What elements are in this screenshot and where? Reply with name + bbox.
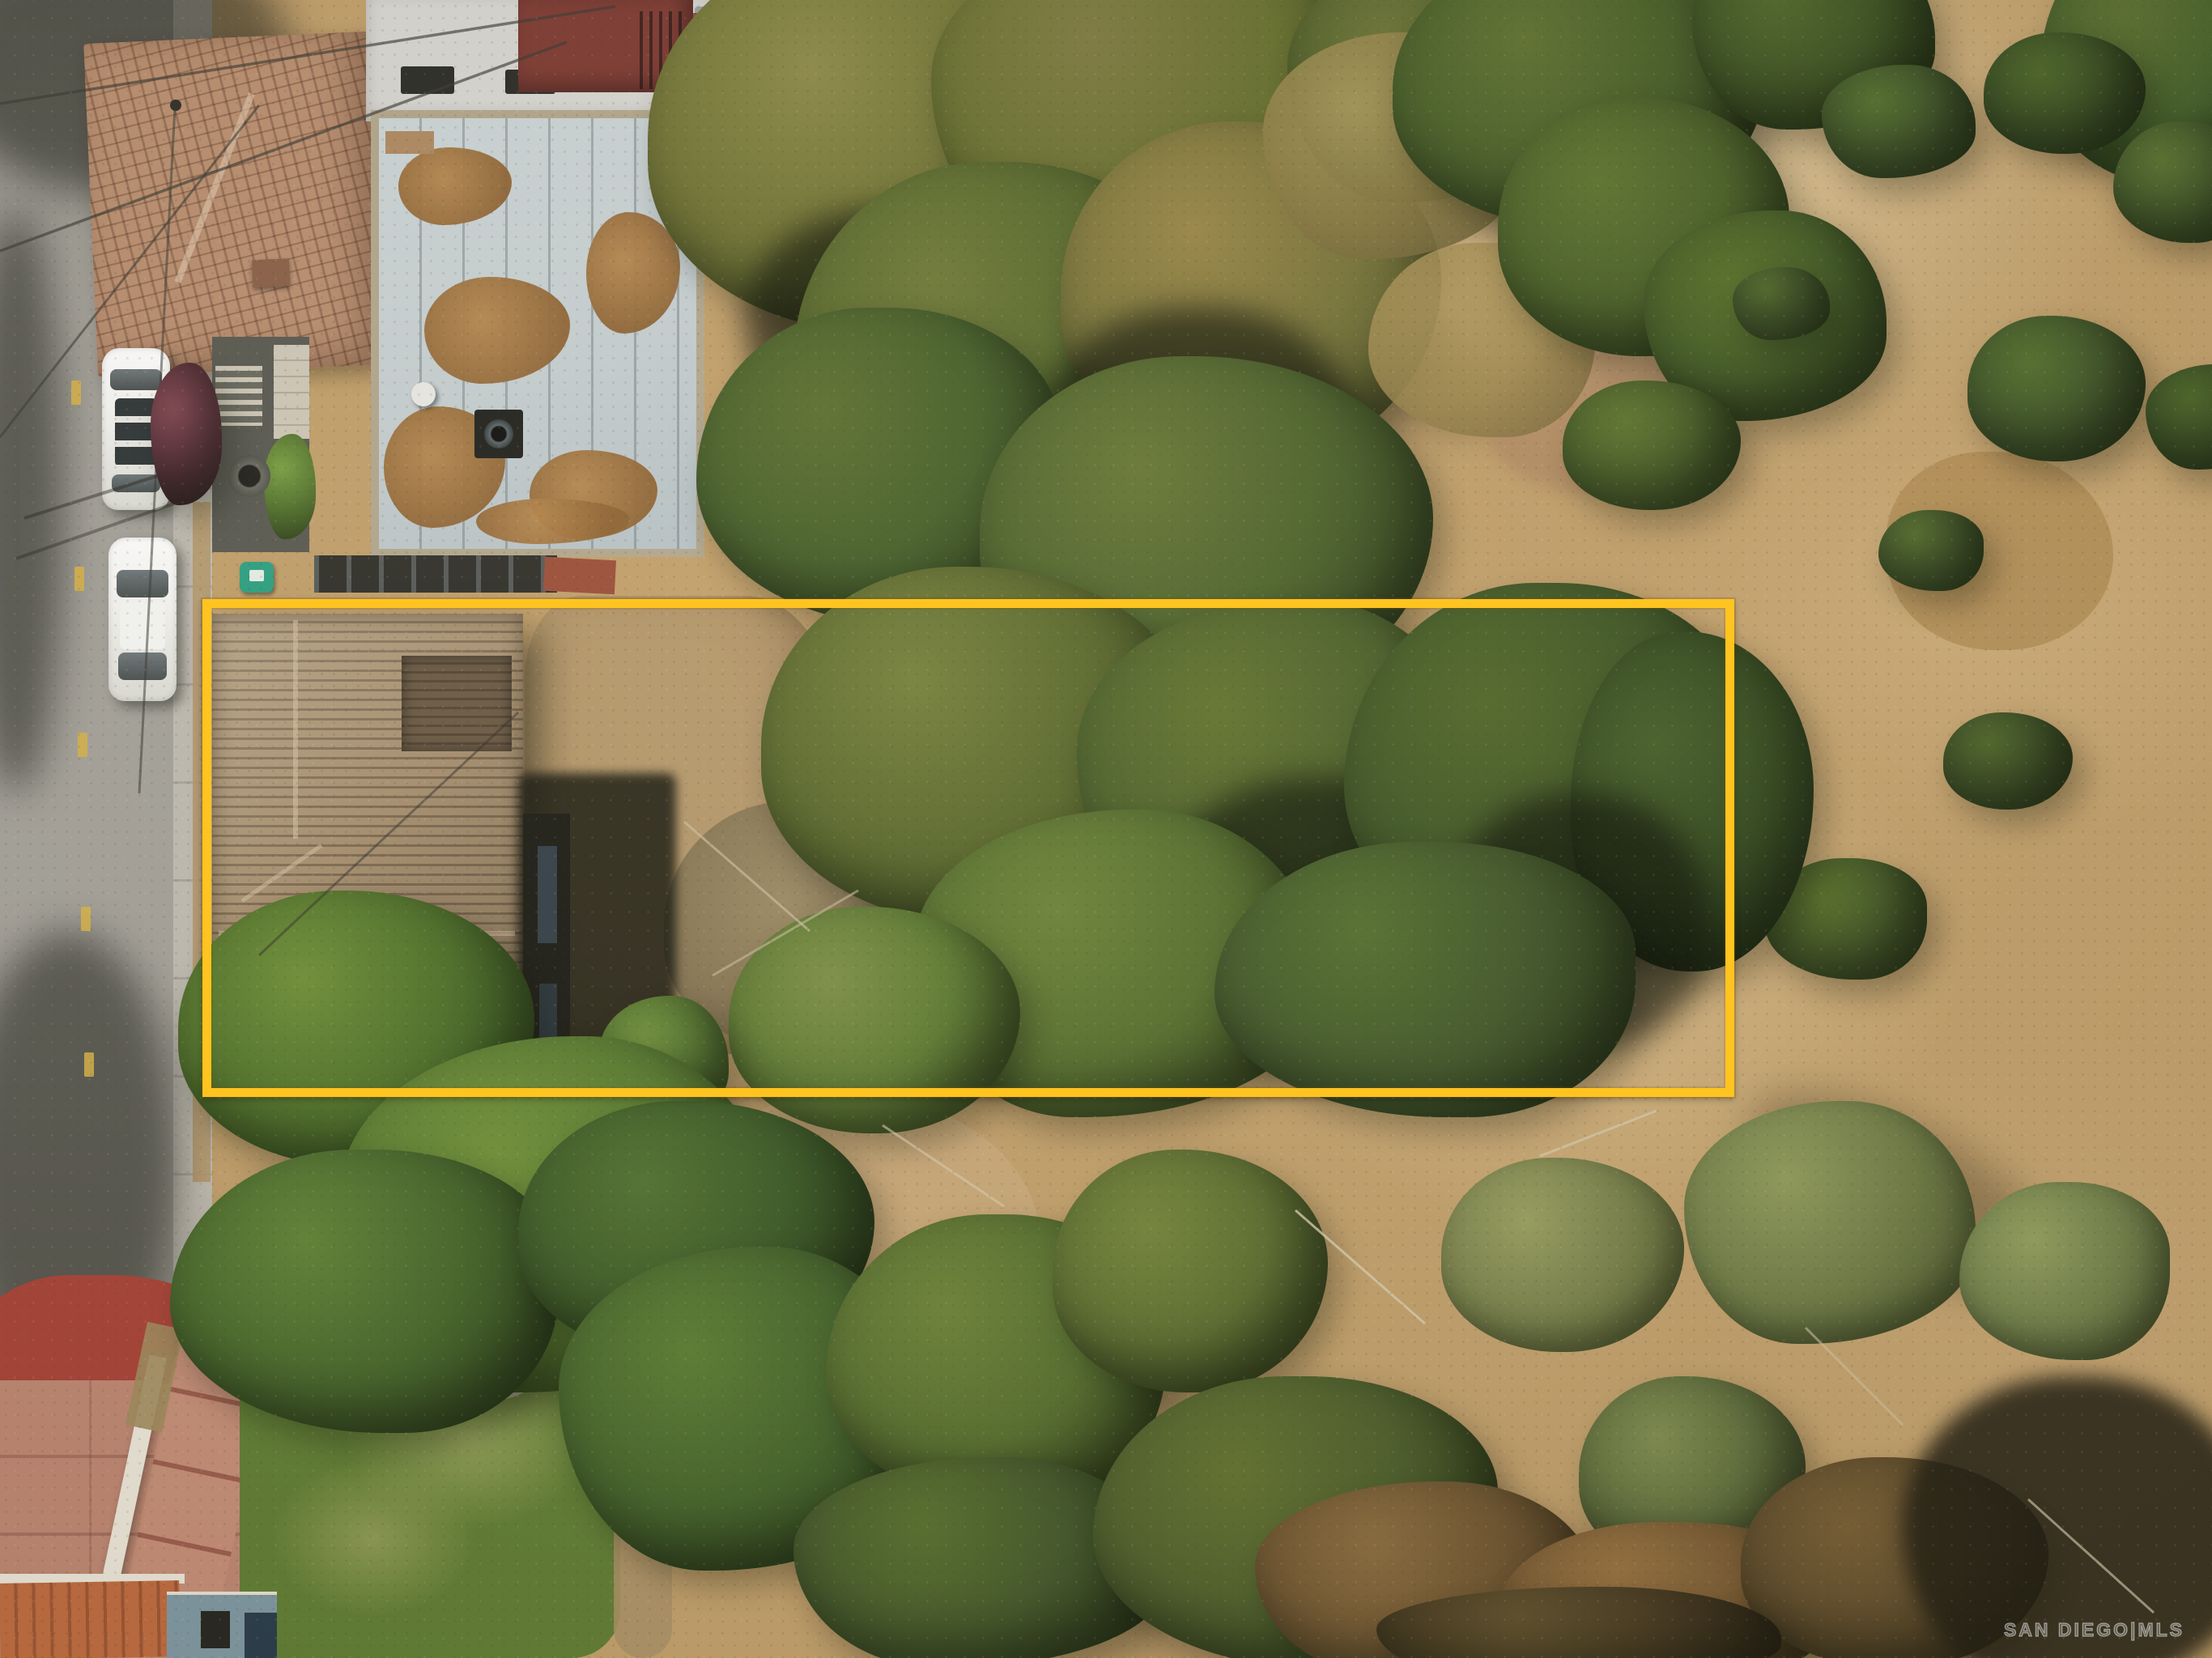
property-boundary-overlay: [202, 599, 1734, 1097]
yellow-dash: [84, 1052, 94, 1077]
shrub: [1733, 267, 1830, 340]
shrub: [1878, 510, 1984, 591]
sage-tree: [1959, 1182, 2170, 1360]
mls-watermark: SAN DIEGO|MLS: [2004, 1619, 2184, 1641]
shrub: [1967, 316, 2146, 461]
shrub: [1563, 380, 1741, 510]
sage-tree: [1441, 1158, 1684, 1352]
shrub: [1822, 65, 1976, 178]
bottom-tile-roof: [0, 1580, 181, 1658]
yellow-dash: [81, 907, 91, 931]
tree-canopy: [170, 1150, 559, 1433]
sage-tree: [1684, 1101, 1976, 1344]
dark-blue-panel: [245, 1613, 277, 1658]
shrub: [1984, 32, 2146, 154]
bottom-gray-building: [167, 1592, 277, 1658]
aerial-photo-canvas: SAN DIEGO|MLS: [0, 0, 2212, 1658]
tree-canopy: [1053, 1150, 1328, 1392]
plum-tree: [151, 363, 222, 505]
rooftop-equipment: [201, 1611, 230, 1648]
shrub: [1943, 712, 2073, 810]
